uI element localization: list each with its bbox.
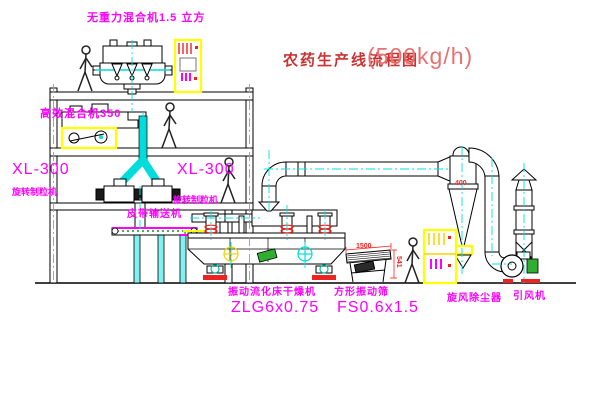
diagram-capacity: (500kg/h) <box>367 45 473 68</box>
label-dryer: 振动流化床干燥机 <box>228 288 316 298</box>
control-cabinet-bottom <box>424 230 456 283</box>
person-icon <box>405 238 419 283</box>
person-icon <box>162 103 176 148</box>
induced-draft-fan <box>501 252 540 283</box>
fan-motor <box>527 259 538 273</box>
label-screen: 方形振动筛 <box>334 288 389 298</box>
dim-cyclone-inlet: 400 <box>455 180 467 187</box>
granulator-left <box>96 179 142 202</box>
fluid-bed-dryer <box>188 202 345 280</box>
label-fan: 引风机 <box>513 292 546 302</box>
label-screen-model: FS0.6x1.5 <box>337 300 419 316</box>
person-icon <box>78 46 92 91</box>
gravity-mixer-machine <box>93 40 172 94</box>
label-high-eff-mixer: 高效混合机350 <box>40 109 121 120</box>
dryer-supports <box>203 265 336 280</box>
exhaust-duct <box>262 156 452 202</box>
label-belt-conveyor: 皮带输送机 <box>127 210 182 220</box>
conveyor-legs <box>134 234 186 283</box>
label-xl300-left: XL-300 <box>12 162 70 178</box>
control-cabinet-top <box>175 40 201 92</box>
label-cyclone: 旋风除尘器 <box>447 294 502 304</box>
label-granulator-mid: 旋转制粒机 <box>173 196 218 205</box>
dim-screen-length: 1500 <box>356 243 372 250</box>
label-xl300-mid: XL-300 <box>177 162 235 178</box>
label-dryer-model: ZLG6x0.75 <box>231 300 319 316</box>
label-granulator-left: 旋转制粒机 <box>12 188 57 197</box>
cad-flow-diagram: 农药生产线流程图 (500kg/h) 无重力混合机1.5 立方 高效混合机350… <box>0 0 600 403</box>
label-gravity-mixer: 无重力混合机1.5 立方 <box>87 13 205 24</box>
dim-screen-height: 541 <box>395 256 402 268</box>
